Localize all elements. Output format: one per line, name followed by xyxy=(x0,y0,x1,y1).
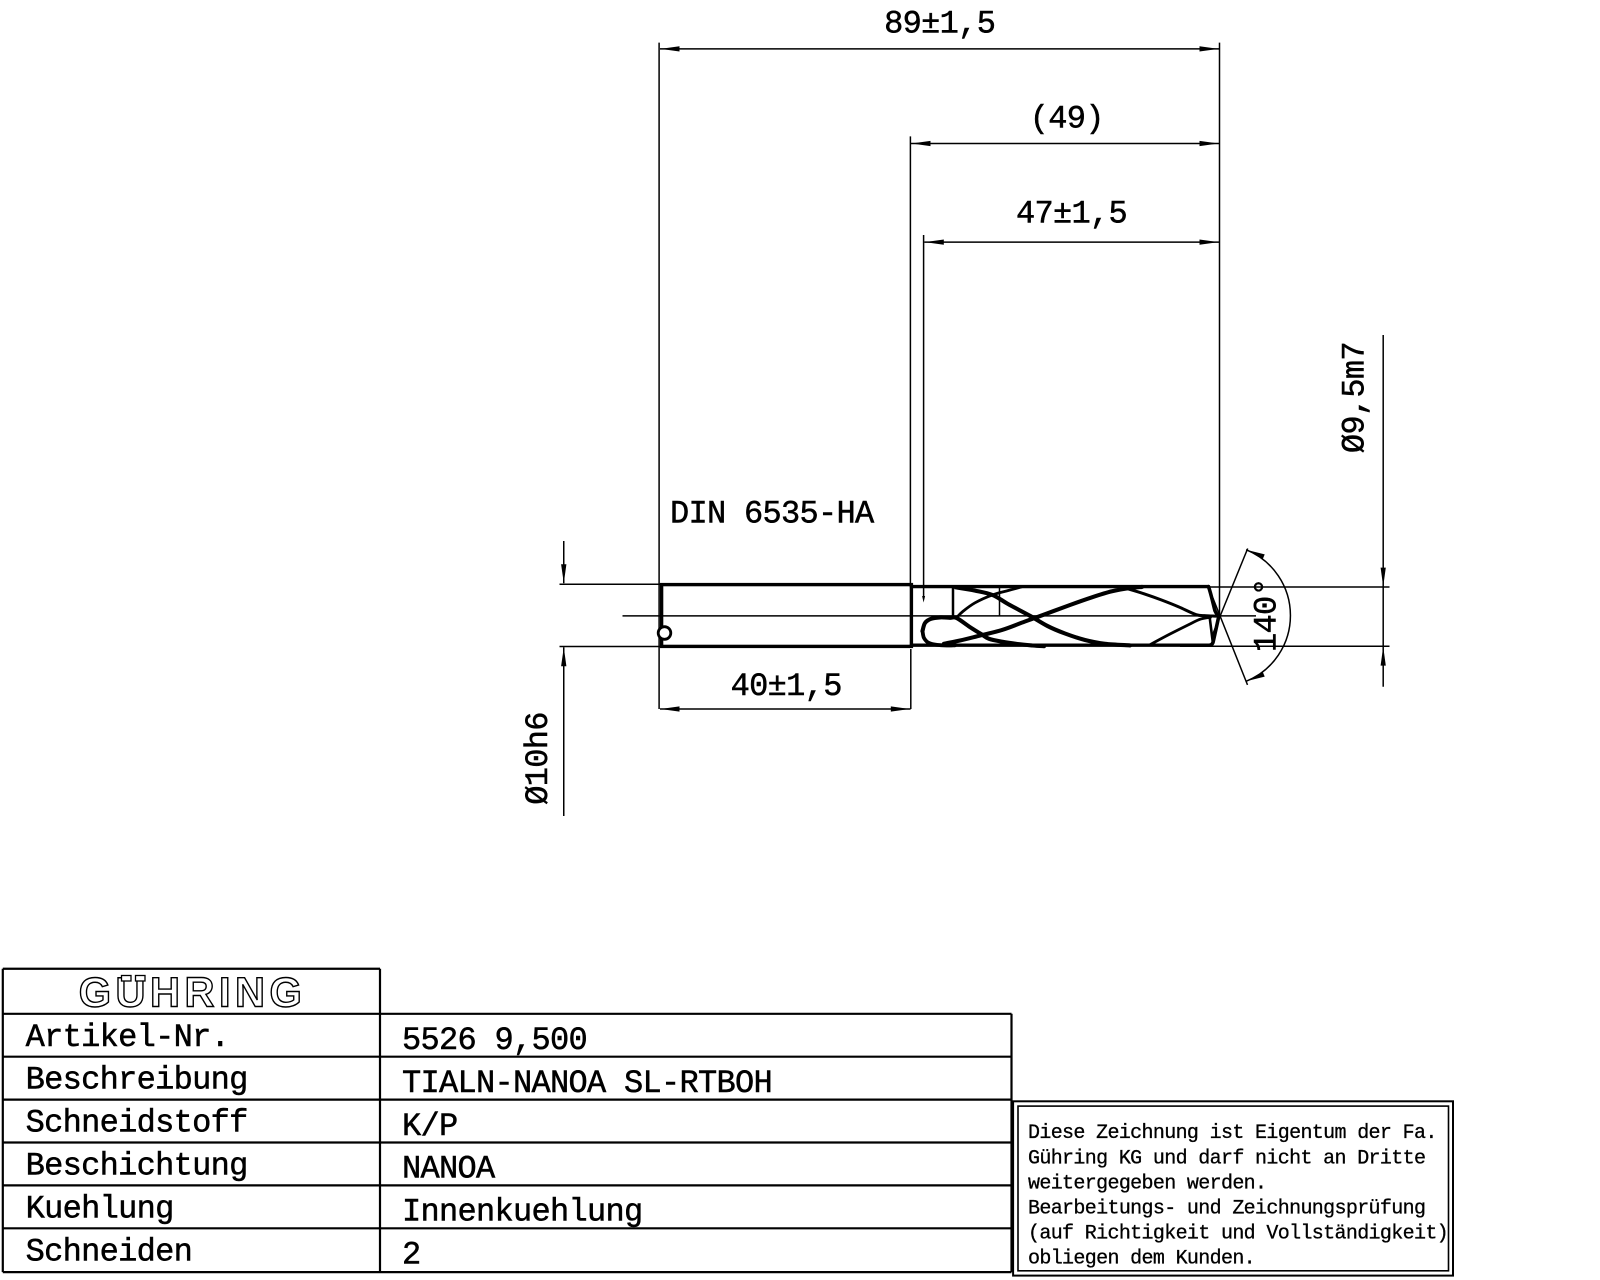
svg-text:Diese Zeichnung ist Eigentum d: Diese Zeichnung ist Eigentum der Fa. xyxy=(1028,1122,1437,1145)
svg-text:40±1,5: 40±1,5 xyxy=(731,668,842,705)
svg-text:47±1,5: 47±1,5 xyxy=(1016,196,1127,233)
svg-text:K/P: K/P xyxy=(402,1108,458,1145)
svg-text:Bearbeitungs- und Zeichnungspr: Bearbeitungs- und Zeichnungsprüfung xyxy=(1028,1197,1425,1220)
svg-text:(auf Richtigkeit und Vollständ: (auf Richtigkeit und Vollständigkeit) xyxy=(1028,1223,1448,1246)
svg-text:Schneidstoff: Schneidstoff xyxy=(26,1105,248,1142)
svg-text:89±1,5: 89±1,5 xyxy=(884,5,995,42)
svg-text:Artikel-Nr.: Artikel-Nr. xyxy=(26,1019,230,1056)
svg-text:Beschichtung: Beschichtung xyxy=(26,1148,248,1185)
svg-text:Gühring KG und darf nicht an D: Gühring KG und darf nicht an Dritte xyxy=(1028,1147,1425,1170)
svg-text:weitergegeben werden.: weitergegeben werden. xyxy=(1028,1172,1266,1195)
svg-text:Beschreibung: Beschreibung xyxy=(26,1062,248,1099)
svg-text:Kuehlung: Kuehlung xyxy=(26,1190,174,1227)
svg-text:obliegen dem Kunden.: obliegen dem Kunden. xyxy=(1028,1248,1255,1271)
svg-text:NANOA: NANOA xyxy=(402,1151,496,1188)
svg-text:140°: 140° xyxy=(1249,578,1286,652)
svg-text:DIN 6535-HA: DIN 6535-HA xyxy=(670,496,875,533)
svg-text:Ø10h6: Ø10h6 xyxy=(520,712,557,805)
svg-text:5526 9,500: 5526 9,500 xyxy=(402,1022,587,1059)
svg-text:Schneiden: Schneiden xyxy=(26,1233,193,1270)
svg-text:Innenkuehlung: Innenkuehlung xyxy=(402,1194,643,1231)
svg-text:GUHRING: GUHRING xyxy=(79,968,306,1015)
svg-text:(49): (49) xyxy=(1030,101,1104,138)
svg-text:Ø9,5m7: Ø9,5m7 xyxy=(1337,342,1374,453)
svg-text:TIALN-NANOA SL-RTBOH: TIALN-NANOA SL-RTBOH xyxy=(402,1065,772,1102)
svg-text:2: 2 xyxy=(402,1237,421,1274)
